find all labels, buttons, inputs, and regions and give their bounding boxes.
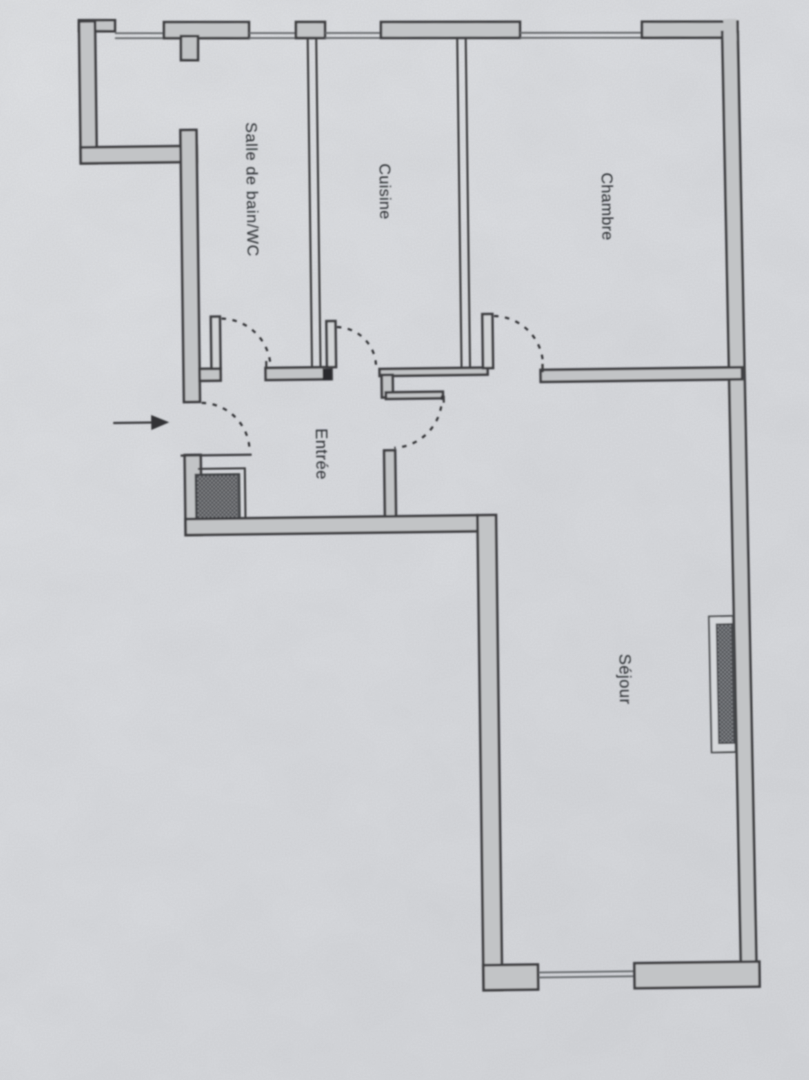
svg-text:Cuisine: Cuisine <box>375 163 393 219</box>
svg-text:Chambre: Chambre <box>597 172 615 240</box>
svg-text:Entrée: Entrée <box>312 428 331 480</box>
svg-text:Salle de bain/WC: Salle de bain/WC <box>242 122 261 257</box>
svg-text:Séjour: Séjour <box>615 654 634 705</box>
